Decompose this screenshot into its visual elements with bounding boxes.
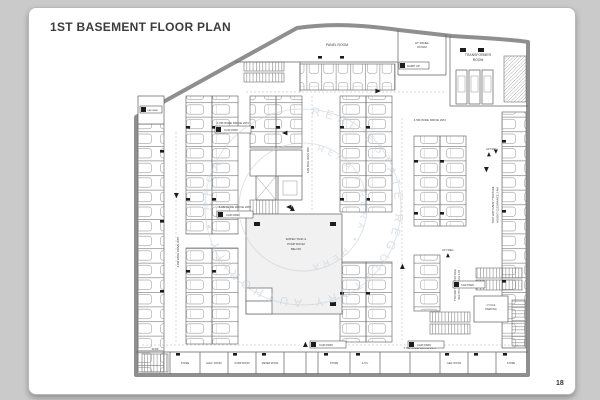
driveway-label: 6.0M WIDE DRIVE WAY <box>217 121 250 125</box>
stair-label: STAIR <box>152 348 159 351</box>
svg-text:PUMP ROOM: PUMP ROOM <box>287 242 305 246</box>
driveway-label: 4.5M WIDE DRIVE WAY <box>414 118 447 122</box>
svg-text:RAMP UP: RAMP UP <box>407 64 420 68</box>
bottom-room-label: GEN. ROOM <box>447 362 461 365</box>
bottom-rooms-strip: STORE ELEC. ROOM PUMP ROOM METER ROOM ST… <box>136 352 528 374</box>
svg-text:CAR PARK: CAR PARK <box>417 343 431 347</box>
car-count-badge: CAR PARK <box>310 341 346 348</box>
ramp-label: HEIGHT CLEARANCE 2.4M <box>496 187 500 223</box>
driveway-label-vertical: 6.0M WIDE DRIVE WAY <box>176 237 180 268</box>
ramp-up-badge: RAMP UP <box>399 62 429 69</box>
bottom-room-label: A.H.U <box>362 362 369 365</box>
ramp-label: TWO WAY RAMP 7.5M WIDE <box>491 186 495 223</box>
svg-text:PARKING: PARKING <box>485 307 496 311</box>
core-block <box>250 150 302 214</box>
svg-text:CAR PARK: CAR PARK <box>224 128 238 132</box>
svg-text:BELOW: BELOW <box>291 247 301 251</box>
svg-text:CAR PARK: CAR PARK <box>461 283 474 287</box>
car-count-badge: CAR PARK <box>453 281 485 288</box>
car-count-badge: CAR PARK <box>217 211 253 218</box>
driveway-label-vertical: 6.0M WIDE DRIVE WAY <box>307 147 310 173</box>
bottom-room-label: PUMP ROOM <box>235 362 250 365</box>
bottom-room-label: ELEC. ROOM <box>206 362 221 365</box>
svg-text:CAR PARK: CAR PARK <box>147 109 159 112</box>
svg-text:CAR PARK: CAR PARK <box>226 213 240 217</box>
car-count-badge: CAR PARK <box>408 341 444 348</box>
driveway-label: 6.0M WIDE DRIVE WAY <box>219 205 252 209</box>
car-count-badge: CAR PARK <box>140 106 162 113</box>
floor-plan-drawing: PANEL ROOM HT PANEL ROOM TRANSFORMER ROO… <box>0 0 600 400</box>
svg-text:ROOM: ROOM <box>473 58 484 62</box>
svg-text:ROOM: ROOM <box>417 45 427 49</box>
panel-room-label: PANEL ROOM <box>326 43 348 47</box>
bottom-room-label: STORE <box>507 362 516 365</box>
transformer-room-label: TRANSFORMER <box>465 53 492 57</box>
bottom-room-label: STORE <box>181 362 190 365</box>
slide-background: 1ST BASEMENT FLOOR PLAN <box>0 0 600 400</box>
svg-text:CAR PARK: CAR PARK <box>319 343 333 347</box>
bottom-room-label: METER ROOM <box>262 362 278 365</box>
lift-well-label: LIFT WELL <box>442 249 455 252</box>
page-number: 18 <box>556 380 564 387</box>
water-tank-label: WATER TANK & <box>286 237 307 241</box>
cycle-parking-label: CYCLE <box>487 303 496 307</box>
bottom-room-label: STORE <box>330 362 339 365</box>
